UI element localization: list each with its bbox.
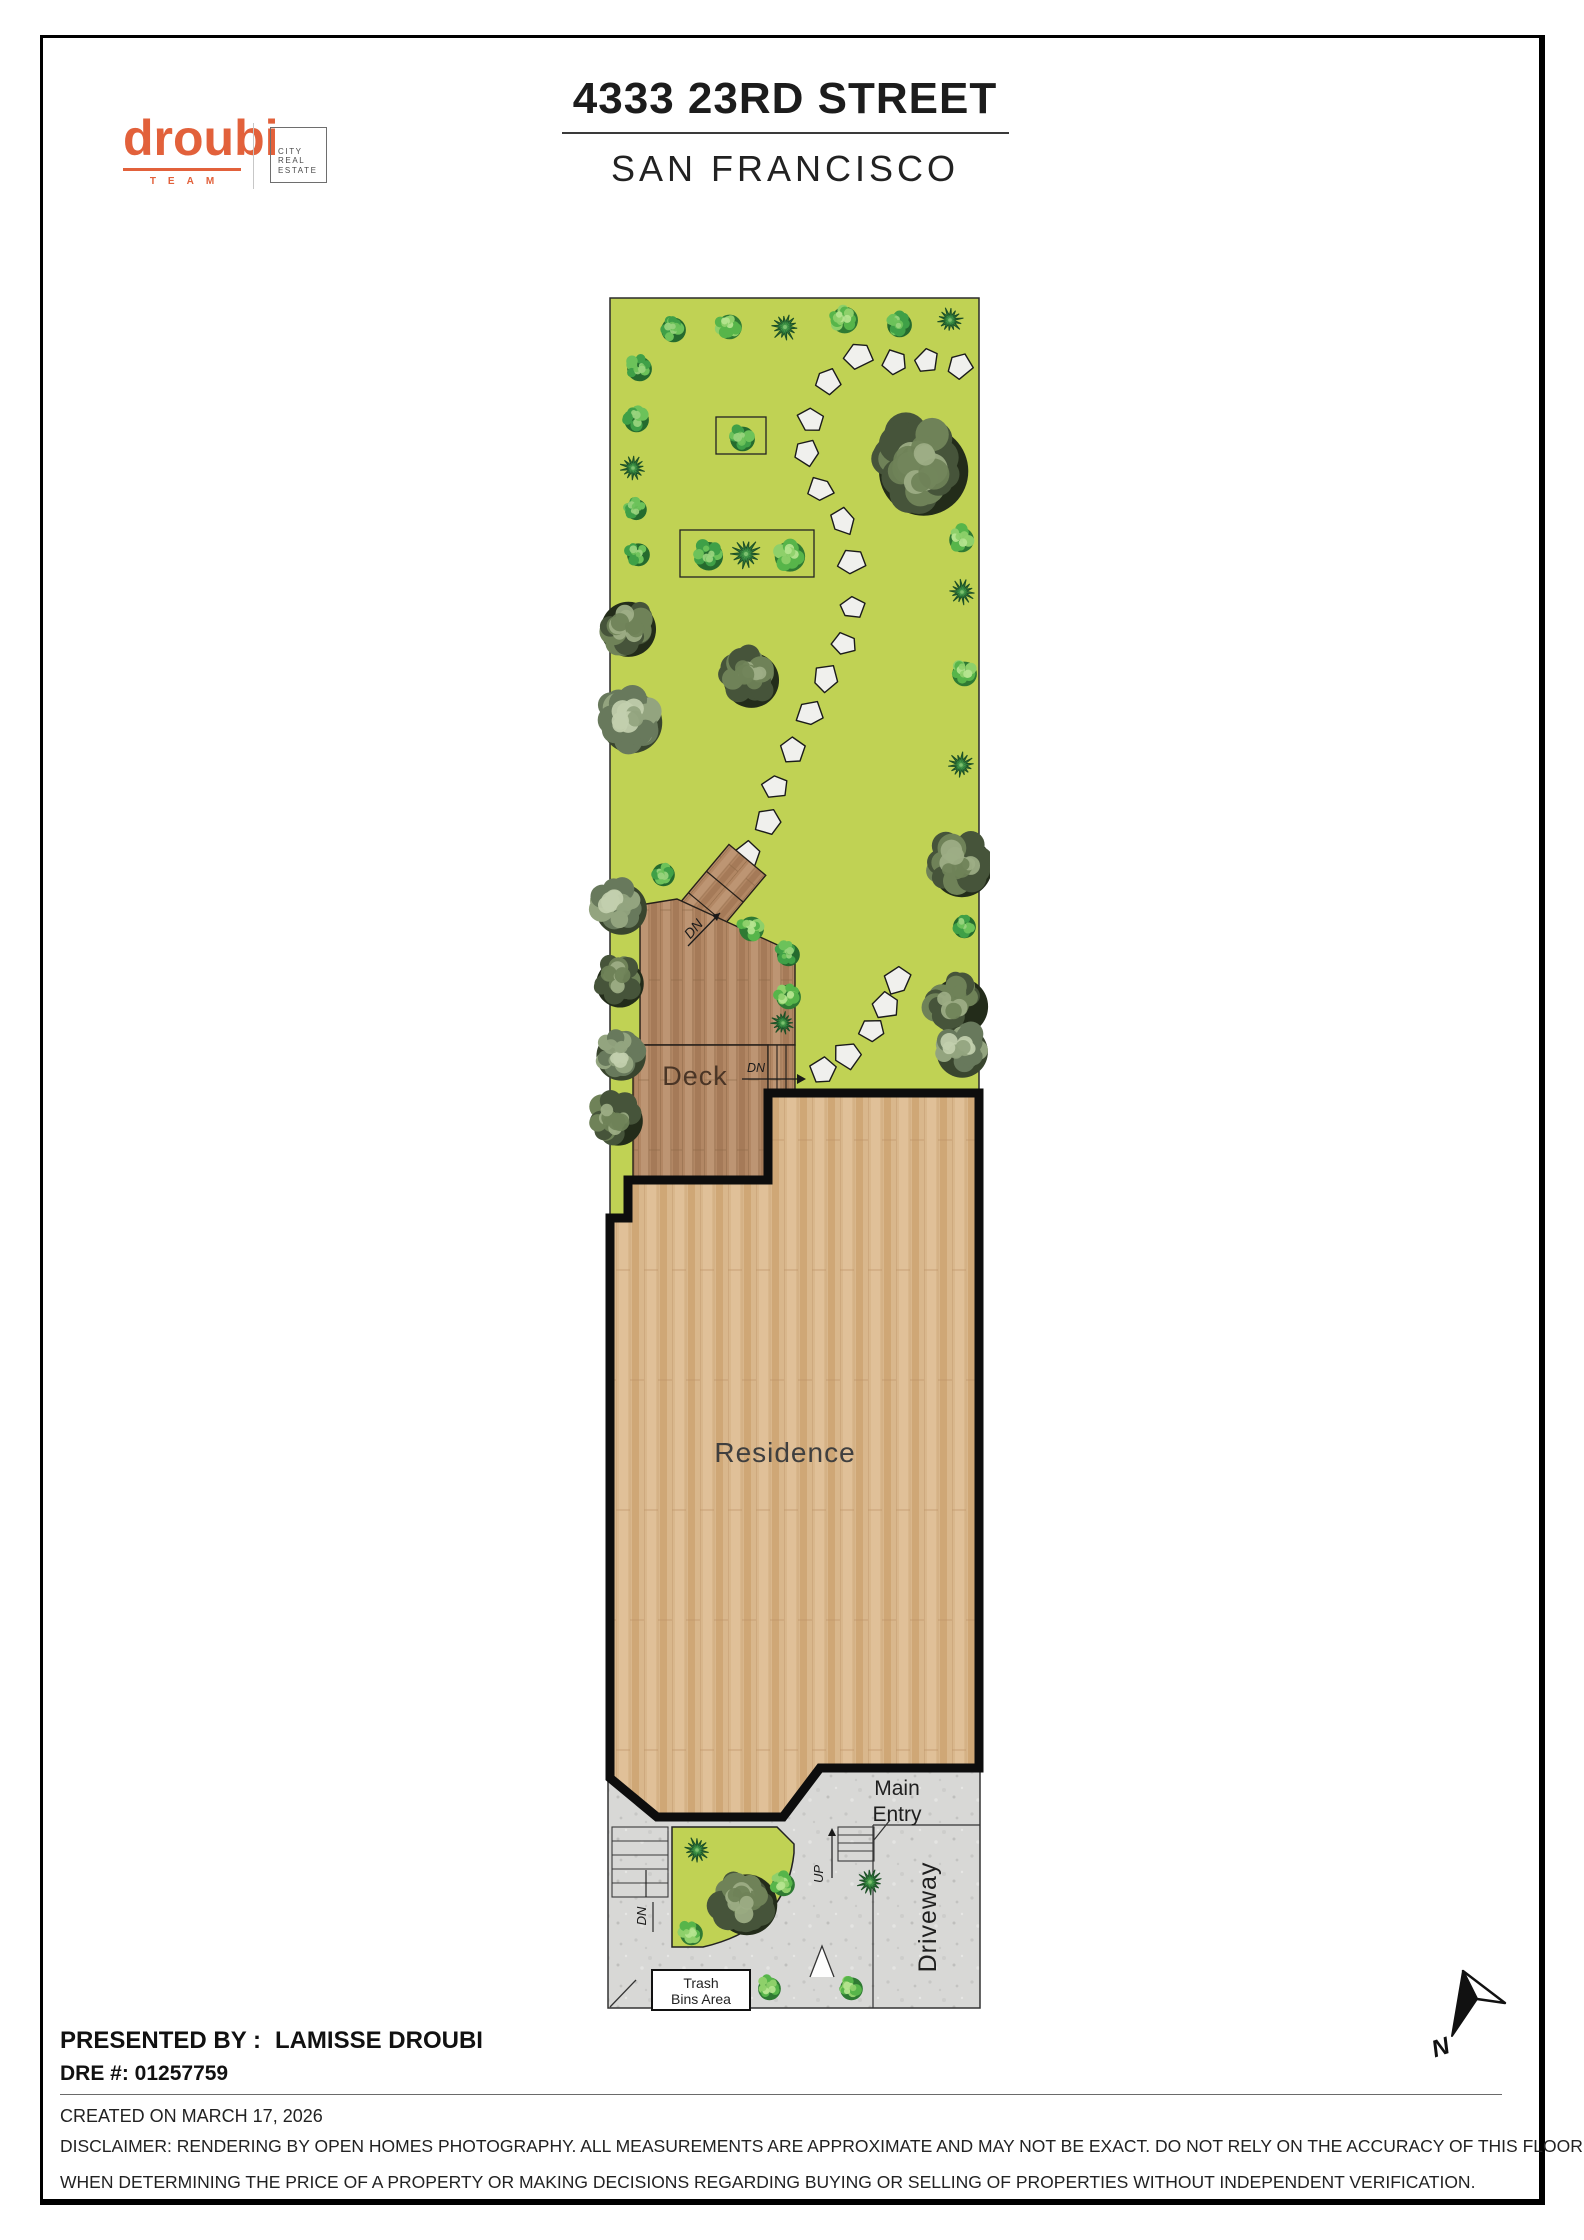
site-plan: DN Deck DN Residence DN [585, 290, 990, 2015]
north-arrow: N [1415, 1945, 1545, 2070]
footer-divider [60, 2094, 1502, 2095]
main-entry-label-1: Main [874, 1777, 920, 1800]
trash-label-2: Bins Area [671, 1991, 731, 2007]
north-label: N [1428, 2032, 1453, 2063]
deck-dn-lower-label: DN [747, 1061, 766, 1075]
residence-label: Residence [714, 1437, 855, 1468]
created-date: CREATED ON MARCH 17, 2026 [60, 2106, 323, 2127]
presented-by-line: PRESENTED BY :LAMISSE DROUBI [60, 2027, 483, 2055]
deck-stairs-lower [768, 1045, 795, 1092]
real-line: REAL [278, 156, 326, 166]
estate-line: ESTATE [278, 166, 326, 176]
title-block: 4333 23RD STREET SAN FRANCISCO [470, 74, 1100, 190]
deck-label: Deck [662, 1061, 728, 1091]
agent-name: LAMISSE DROUBI [275, 2027, 483, 2054]
disclaimer-line-2: WHEN DETERMINING THE PRICE OF A PROPERTY… [60, 2172, 1475, 2193]
tree [594, 955, 644, 1008]
brand-divider [253, 123, 254, 189]
page-subtitle: SAN FRANCISCO [470, 148, 1100, 190]
trash-label-1: Trash [683, 1975, 718, 1991]
dre-number: DRE #: 01257759 [60, 2062, 228, 2086]
tree [599, 602, 656, 657]
brand-underline [123, 168, 241, 171]
entry-up-label: UP [811, 1865, 826, 1883]
page-title: 4333 23RD STREET [470, 74, 1100, 124]
title-underline [562, 132, 1009, 134]
city-real-estate-logo: CITY REAL ESTATE [270, 127, 327, 183]
tree [952, 660, 977, 686]
city-line: CITY [278, 147, 326, 157]
disclaimer-line-1: DISCLAIMER: RENDERING BY OPEN HOMES PHOT… [60, 2136, 1584, 2157]
main-entry-label-2: Entry [872, 1803, 922, 1826]
left-stairs-dn-label: DN [634, 1906, 649, 1925]
floor-plan-page: droubi TEAM CITY REAL ESTATE 4333 23RD S… [0, 0, 1584, 2240]
brand-team-label: TEAM [123, 176, 241, 187]
tree [589, 1090, 643, 1146]
presented-by-label: PRESENTED BY : [60, 2027, 261, 2054]
driveway-label: Driveway [914, 1862, 942, 1973]
